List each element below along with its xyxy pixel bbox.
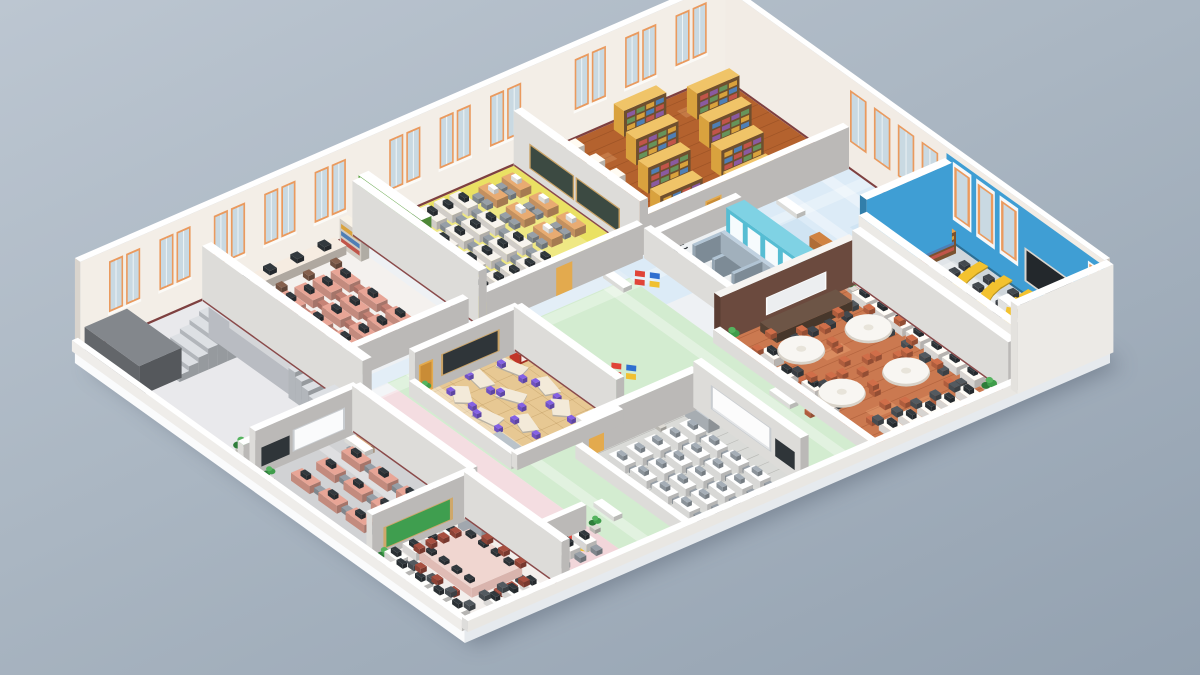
isometric-building-scene: WC Library Computer Lab Staff Office Lob… — [0, 0, 1200, 675]
floorplan-3d-render: WC — [0, 0, 1200, 675]
